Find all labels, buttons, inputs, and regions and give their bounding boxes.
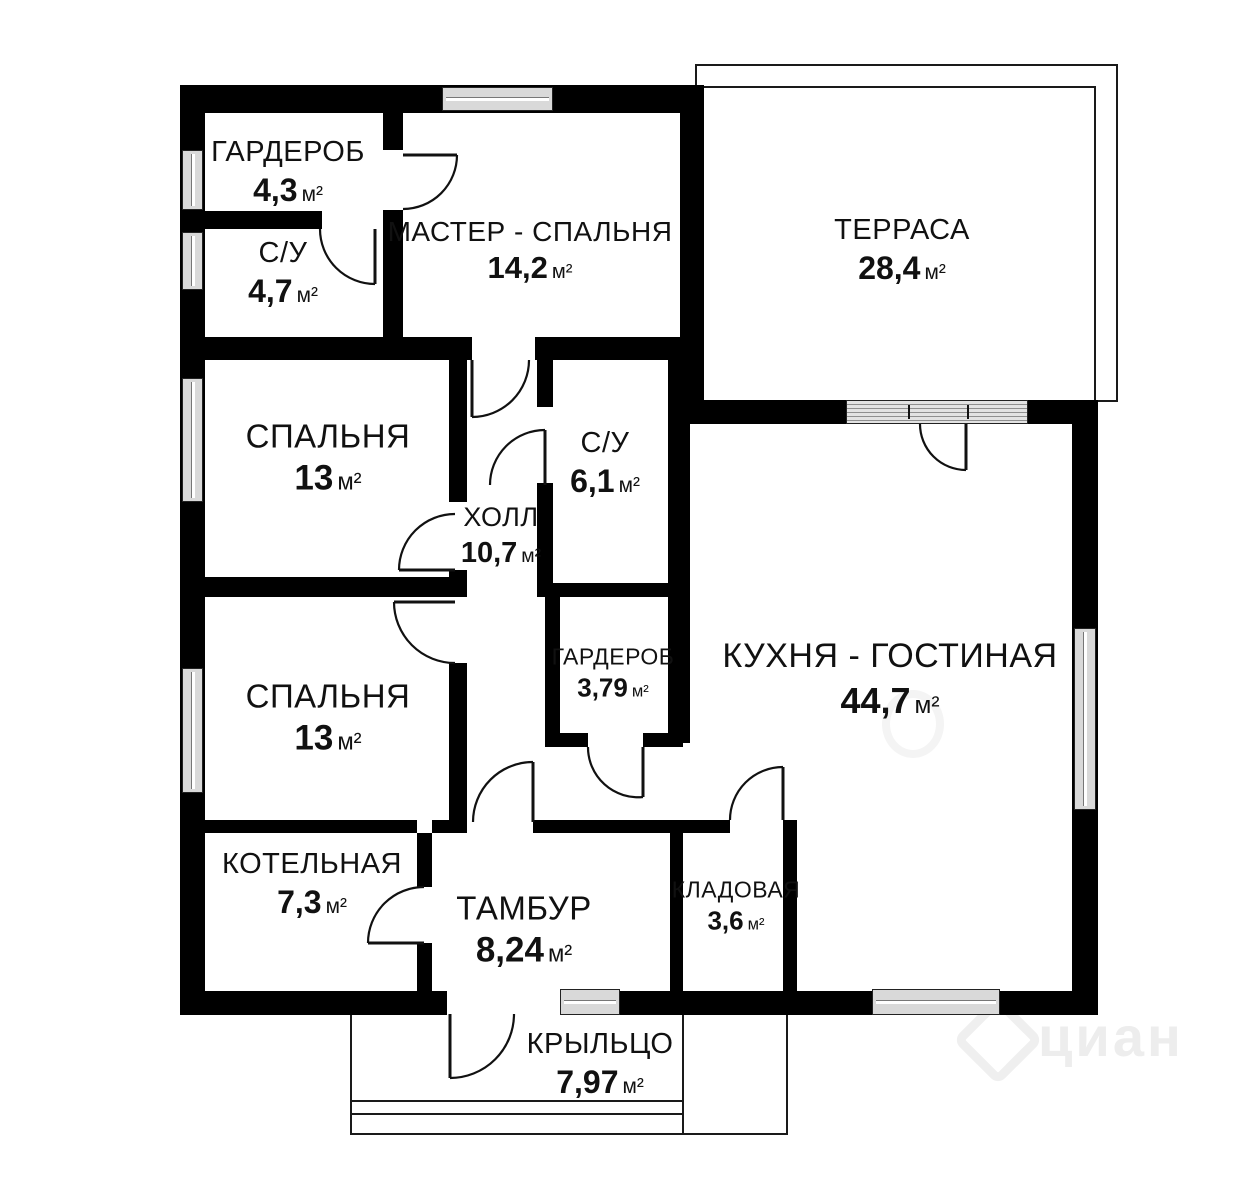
door-arc-garderob1 xyxy=(403,155,457,209)
room-label-storage: КЛАДОВАЯ 3,6м² xyxy=(672,875,801,936)
door-arc-tambur xyxy=(473,762,533,822)
door-arc-terrace xyxy=(920,424,966,470)
door-arc-bedroom2 xyxy=(394,602,455,663)
room-label-garderob-1: ГАРДЕРОБ 4,3м² xyxy=(211,134,365,211)
door-arc-master xyxy=(472,360,529,417)
room-label-bedroom-2: СПАЛЬНЯ 13м² xyxy=(246,676,411,761)
door-arc-entrance xyxy=(450,1014,514,1078)
room-label-su-2: С/У 6,1м² xyxy=(570,425,640,502)
room-label-master: МАСТЕР - СПАЛЬНЯ 14,2м² xyxy=(388,214,673,288)
floor-plan: циан xyxy=(0,0,1260,1183)
room-label-terrace: ТЕРРАСА 28,4м² xyxy=(834,212,970,289)
door-arc-su2 xyxy=(490,430,545,485)
door-arc-group xyxy=(320,155,966,1078)
door-arc-storage xyxy=(730,767,783,820)
door-arc-su1 xyxy=(320,229,375,284)
room-label-garderob-2: ГАРДЕРОБ 3,79м² xyxy=(552,642,675,703)
door-arc-bedroom1 xyxy=(399,514,455,570)
door-arcs xyxy=(0,0,1260,1183)
room-label-porch: КРЫЛЬЦО 7,97м² xyxy=(527,1026,674,1103)
door-arc-garderob2 xyxy=(588,747,643,797)
room-label-hall: ХОЛЛ 10,7м² xyxy=(461,501,541,571)
room-label-tambur: ТАМБУР 8,24м² xyxy=(456,888,591,973)
room-label-su-1: С/У 4,7м² xyxy=(248,235,318,312)
room-label-bedroom-1: СПАЛЬНЯ 13м² xyxy=(246,416,411,501)
room-label-boiler: КОТЕЛЬНАЯ 7,3м² xyxy=(222,846,402,923)
room-label-kitchen: КУХНЯ - ГОСТИНАЯ 44,7м² xyxy=(722,635,1057,723)
